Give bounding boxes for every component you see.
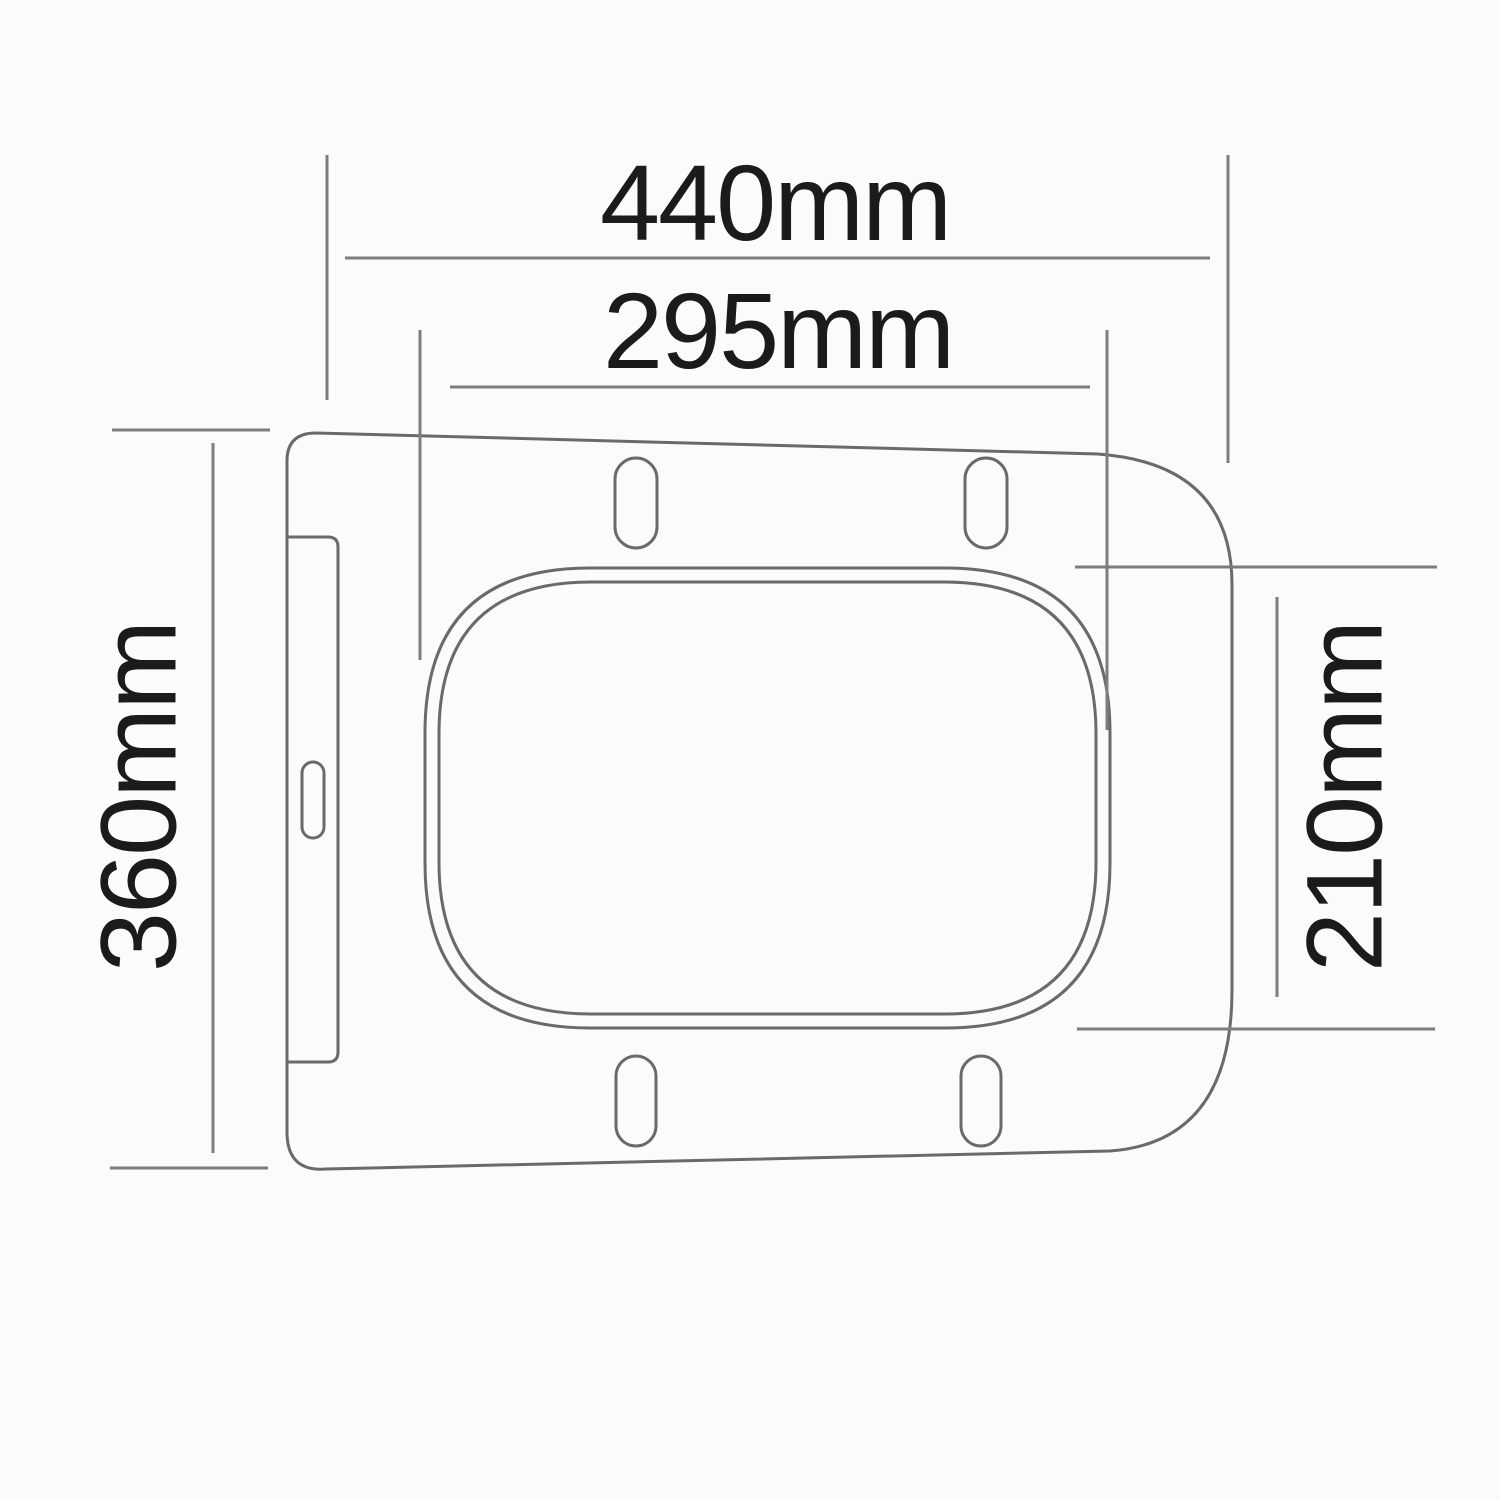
label-overall-width: 440mm bbox=[600, 142, 950, 263]
technical-drawing-toilet-seat: 440mm 295mm 360mm 210mm bbox=[0, 0, 1500, 1500]
label-overall-depth: 360mm bbox=[78, 622, 199, 972]
label-opening-depth: 210mm bbox=[1284, 622, 1405, 972]
label-opening-width: 295mm bbox=[603, 270, 953, 391]
